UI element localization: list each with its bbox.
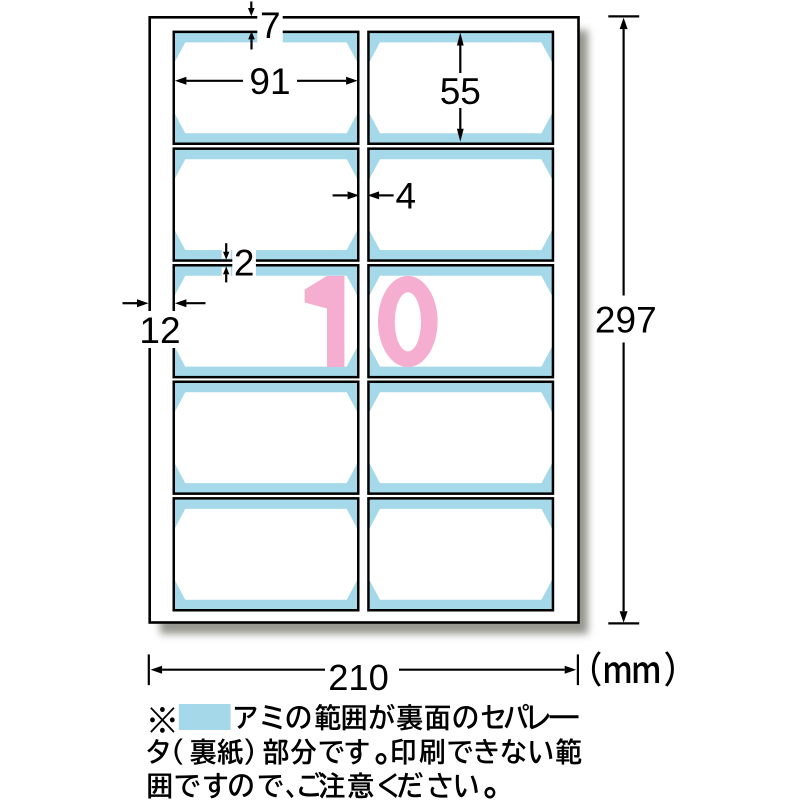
svg-text:7: 7 [260,5,281,46]
svg-text:12: 12 [139,310,180,351]
svg-text:55: 55 [440,71,481,112]
svg-text:210: 210 [328,657,389,698]
svg-text:2: 2 [234,243,255,284]
svg-text:4: 4 [396,175,417,216]
svg-text:297: 297 [595,299,657,340]
svg-text:91: 91 [249,61,290,102]
